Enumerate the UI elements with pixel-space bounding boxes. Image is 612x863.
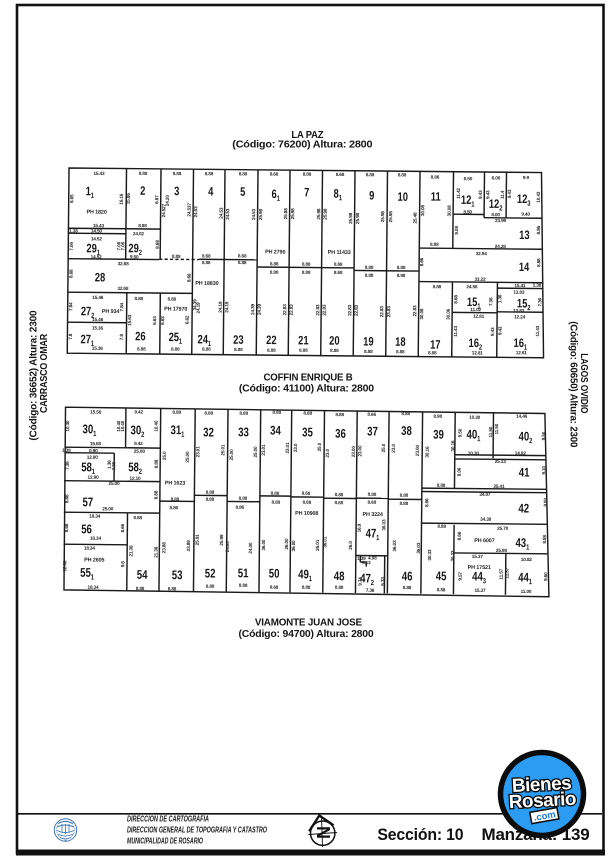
svg-text:11.00: 11.00: [521, 589, 532, 594]
svg-text:25.70: 25.70: [497, 526, 509, 531]
svg-text:15.37: 15.37: [474, 588, 486, 593]
svg-text:9.42: 9.42: [134, 441, 143, 446]
svg-text:33: 33: [238, 426, 249, 440]
svg-text:8.88: 8.88: [154, 459, 159, 468]
svg-text:14.52: 14.52: [91, 236, 103, 241]
svg-text:8.88: 8.88: [271, 491, 280, 496]
svg-text:1.38: 1.38: [533, 283, 542, 288]
svg-text:8.88: 8.88: [302, 270, 311, 275]
svg-text:Sección: 10: Sección: 10: [377, 825, 463, 844]
svg-text:8.88: 8.88: [302, 262, 311, 267]
svg-text:21: 21: [298, 334, 309, 348]
svg-text:11.43: 11.43: [453, 326, 458, 337]
svg-text:18: 18: [395, 336, 406, 350]
svg-text:53: 53: [172, 569, 183, 583]
svg-text:34: 34: [270, 424, 281, 438]
svg-text:11.42: 11.42: [456, 188, 461, 199]
svg-text:8.68: 8.68: [334, 262, 343, 267]
svg-text:1.38: 1.38: [69, 228, 78, 233]
svg-text:8.06: 8.06: [457, 467, 462, 476]
svg-text:23.01: 23.01: [195, 446, 200, 458]
svg-text:PH 10908: PH 10908: [295, 511, 318, 517]
svg-text:8.00: 8.00: [491, 212, 500, 217]
svg-text:8.88: 8.88: [366, 172, 375, 177]
svg-text:9.50: 9.50: [458, 428, 463, 437]
svg-text:8.88: 8.88: [172, 410, 181, 415]
svg-text:8.68: 8.68: [270, 585, 279, 590]
svg-text:15.46: 15.46: [92, 317, 104, 322]
svg-text:19: 19: [363, 335, 374, 349]
svg-text:8.68: 8.68: [155, 240, 160, 249]
svg-text:9.43: 9.43: [490, 327, 495, 336]
svg-text:36.00: 36.00: [291, 540, 296, 552]
svg-text:30.06: 30.06: [446, 308, 451, 320]
svg-text:18.34: 18.34: [90, 536, 102, 541]
svg-text:46: 46: [402, 570, 413, 584]
svg-text:25.99: 25.99: [219, 534, 224, 546]
svg-text:24.00: 24.00: [248, 542, 253, 554]
svg-text:32.94: 32.94: [476, 251, 488, 256]
svg-text:15.63: 15.63: [127, 314, 132, 326]
svg-text:24.19: 24.19: [224, 301, 229, 313]
svg-text:9.74: 9.74: [358, 577, 363, 586]
svg-text:30.16: 30.16: [425, 446, 430, 458]
svg-text:8.88: 8.88: [437, 483, 446, 488]
svg-text:7.36: 7.36: [488, 297, 493, 306]
svg-text:8.68: 8.68: [303, 500, 312, 505]
svg-text:10: 10: [397, 191, 408, 205]
svg-text:24.53: 24.53: [251, 208, 256, 220]
svg-text:13: 13: [519, 229, 530, 243]
svg-text:36.03: 36.03: [392, 540, 397, 552]
svg-text:8.88: 8.88: [239, 496, 248, 501]
svg-text:8.88: 8.88: [239, 171, 248, 176]
svg-text:32.68: 32.68: [117, 286, 129, 291]
svg-text:8.86: 8.86: [169, 505, 178, 510]
svg-text:LAGOS OVIDIO: LAGOS OVIDIO: [578, 353, 589, 413]
svg-text:8.88: 8.88: [138, 223, 147, 228]
svg-text:9.10: 9.10: [541, 466, 546, 475]
svg-text:25.98: 25.98: [496, 548, 508, 553]
svg-text:8.66: 8.66: [457, 531, 462, 540]
svg-text:36.03: 36.03: [416, 542, 421, 554]
svg-text:6.87: 6.87: [154, 195, 159, 204]
svg-text:8.88: 8.88: [299, 348, 308, 353]
svg-text:24.53: 24.53: [193, 206, 198, 218]
svg-text:25.98: 25.98: [388, 211, 393, 223]
svg-text:8.88: 8.88: [330, 348, 339, 353]
svg-text:VIAMONTE JUAN JOSE: VIAMONTE JUAN JOSE: [255, 618, 362, 629]
svg-text:8.88: 8.88: [400, 493, 409, 498]
svg-text:0.90: 0.90: [89, 448, 98, 453]
svg-text:11.50: 11.50: [494, 423, 499, 434]
svg-text:8.88: 8.88: [239, 411, 248, 416]
svg-text:25.00: 25.00: [229, 449, 234, 461]
svg-text:7.36: 7.36: [537, 297, 542, 306]
svg-text:8.88: 8.88: [403, 585, 412, 590]
svg-text:25.41: 25.41: [493, 484, 505, 489]
svg-text:11.02: 11.02: [470, 307, 481, 312]
svg-text:8.68: 8.68: [336, 172, 345, 177]
svg-text:9.43: 9.43: [498, 326, 503, 335]
svg-text:25.98: 25.98: [290, 208, 295, 220]
svg-text:9.40: 9.40: [521, 212, 530, 217]
svg-text:12.81: 12.81: [473, 314, 485, 319]
svg-text:16.16: 16.16: [119, 193, 124, 205]
svg-text:24.19: 24.19: [196, 302, 201, 314]
svg-text:41: 41: [519, 466, 530, 480]
svg-text:21.38: 21.38: [153, 546, 158, 558]
svg-text:12.24: 12.24: [514, 314, 526, 319]
svg-text:1.38: 1.38: [62, 448, 71, 453]
svg-text:7.8: 7.8: [119, 334, 124, 341]
svg-text:50: 50: [269, 567, 280, 581]
svg-text:8.88: 8.88: [171, 497, 180, 502]
svg-text:8.68: 8.68: [302, 491, 311, 496]
svg-text:8.68: 8.68: [453, 295, 458, 304]
svg-text:8.88: 8.88: [134, 296, 143, 301]
svg-text:9.43: 9.43: [507, 189, 512, 198]
svg-text:8.86: 8.86: [235, 505, 244, 510]
svg-text:7.84: 7.84: [119, 302, 124, 311]
svg-text:10.82: 10.82: [521, 557, 533, 562]
svg-text:11.4: 11.4: [500, 190, 505, 199]
svg-text:CARRASCO OMAR: CARRASCO OMAR: [39, 333, 50, 413]
svg-text:23.83: 23.83: [386, 306, 391, 318]
svg-text:8.88: 8.88: [396, 349, 405, 354]
svg-text:30.08: 30.08: [419, 308, 424, 320]
svg-text:PH 17521: PH 17521: [468, 565, 491, 571]
svg-text:11.43: 11.43: [535, 325, 540, 336]
svg-text:24.537: 24.537: [187, 203, 192, 217]
svg-text:25.00: 25.00: [185, 451, 190, 463]
svg-text:8.66: 8.66: [367, 412, 376, 417]
svg-text:15.46: 15.46: [92, 295, 104, 300]
svg-text:25.91: 25.91: [195, 534, 200, 546]
svg-text:25.98: 25.98: [380, 211, 385, 223]
svg-text:15.58: 15.58: [90, 441, 102, 446]
svg-text:37: 37: [367, 425, 378, 439]
svg-text:PH 2790: PH 2790: [265, 249, 285, 255]
svg-text:7: 7: [304, 186, 309, 200]
svg-text:9.93: 9.93: [543, 498, 548, 507]
svg-text:MUNICIPALIDAD DE ROSARIO: MUNICIPALIDAD DE ROSARIO: [127, 835, 203, 845]
svg-text:8.88: 8.88: [433, 284, 442, 289]
svg-text:33.22: 33.22: [474, 277, 486, 282]
svg-text:45: 45: [436, 570, 447, 584]
svg-text:10.30: 10.30: [65, 420, 70, 432]
svg-text:8.88: 8.88: [173, 171, 182, 176]
svg-text:16.9: 16.9: [357, 523, 362, 532]
svg-text:8.68: 8.68: [238, 253, 247, 258]
svg-text:30.08: 30.08: [420, 205, 425, 217]
svg-text:25.00: 25.00: [102, 506, 114, 511]
svg-text:8.88: 8.88: [364, 349, 373, 354]
svg-text:8.88: 8.88: [171, 347, 180, 352]
svg-text:10.30: 10.30: [469, 415, 481, 420]
svg-text:24.53: 24.53: [225, 208, 230, 220]
svg-text:PH 934: PH 934: [102, 309, 120, 315]
svg-text:8.88: 8.88: [365, 273, 374, 278]
svg-text:35: 35: [302, 426, 313, 440]
svg-text:22.83: 22.83: [379, 306, 384, 318]
svg-text:8.88: 8.88: [137, 346, 146, 351]
svg-text:8.88: 8.88: [153, 490, 158, 499]
svg-text:4: 4: [208, 185, 213, 199]
svg-text:1.36: 1.36: [497, 294, 502, 303]
svg-text:8.88: 8.88: [270, 261, 279, 266]
svg-text:10.40: 10.40: [154, 420, 159, 432]
svg-text:15.37: 15.37: [472, 554, 484, 559]
svg-text:DIRECCION DE CARTOGRAFIA: DIRECCION DE CARTOGRAFIA: [127, 813, 209, 823]
svg-text:12.90: 12.90: [87, 455, 99, 460]
svg-text:36.01: 36.01: [322, 536, 327, 548]
svg-text:24.28: 24.28: [495, 244, 507, 249]
svg-text:23.00: 23.00: [351, 446, 356, 458]
svg-text:26.00: 26.00: [284, 538, 289, 550]
svg-text:14.46: 14.46: [516, 414, 528, 419]
svg-text:2: 2: [140, 185, 145, 199]
svg-text:23: 23: [233, 334, 244, 348]
svg-text:PH 17970: PH 17970: [164, 306, 187, 312]
svg-text:12.68: 12.68: [62, 560, 67, 572]
svg-text:9.9: 9.9: [523, 175, 530, 180]
svg-text:25.88: 25.88: [283, 208, 288, 220]
svg-text:12.81: 12.81: [472, 350, 484, 355]
svg-text:25.00: 25.00: [108, 481, 120, 486]
svg-text:36.00: 36.00: [261, 539, 266, 551]
svg-text:22.83: 22.83: [354, 304, 359, 316]
svg-text:8.88: 8.88: [302, 585, 311, 590]
svg-text:18.34: 18.34: [87, 585, 99, 590]
svg-text:22.83: 22.83: [289, 304, 294, 316]
svg-text:PH 11433: PH 11433: [328, 250, 351, 256]
svg-text:8.88: 8.88: [303, 172, 312, 177]
svg-text:PH 1623: PH 1623: [165, 480, 185, 486]
svg-text:38: 38: [401, 425, 412, 439]
svg-text:9.60: 9.60: [543, 572, 548, 581]
svg-text:22.83: 22.83: [322, 304, 327, 316]
svg-text:22.83: 22.83: [347, 304, 352, 316]
svg-text:8.66: 8.66: [424, 498, 429, 507]
svg-text:8.98: 8.98: [397, 273, 406, 278]
svg-text:PH 3224: PH 3224: [363, 512, 383, 518]
svg-text:25.0: 25.0: [317, 442, 322, 451]
svg-text:56: 56: [81, 523, 92, 537]
svg-text:8.88: 8.88: [400, 501, 409, 506]
svg-text:25.98: 25.98: [316, 208, 321, 220]
svg-text:COFFIN ENRIQUE B: COFFIN ENRIQUE B: [264, 373, 354, 384]
svg-text:9.08: 9.08: [454, 226, 459, 235]
svg-text:8.88: 8.88: [267, 348, 276, 353]
svg-text:8.88: 8.88: [437, 524, 446, 529]
svg-text:28: 28: [95, 271, 106, 285]
svg-text:8.68: 8.68: [334, 270, 343, 275]
svg-text:23.0: 23.0: [293, 443, 298, 452]
svg-text:8.88: 8.88: [428, 350, 437, 355]
svg-text:8.88: 8.88: [205, 171, 214, 176]
svg-text:8.88: 8.88: [437, 587, 446, 592]
svg-text:32.68: 32.68: [118, 261, 130, 266]
svg-text:8.88: 8.88: [204, 411, 213, 416]
svg-text:8.50: 8.50: [463, 210, 472, 215]
svg-text:18.34: 18.34: [84, 546, 96, 551]
svg-text:15.36: 15.36: [92, 346, 104, 351]
svg-text:8.68: 8.68: [368, 500, 377, 505]
svg-text:25.00: 25.00: [134, 449, 146, 454]
svg-text:24.20: 24.20: [165, 195, 170, 207]
svg-text:9.8: 9.8: [120, 561, 125, 568]
svg-text:8.98: 8.98: [433, 414, 442, 419]
svg-text:24.00: 24.00: [225, 541, 230, 553]
svg-text:25.0: 25.0: [162, 451, 167, 460]
svg-text:7.84: 7.84: [68, 302, 73, 311]
svg-text:8.68: 8.68: [64, 523, 69, 532]
svg-text:25.98: 25.98: [323, 208, 328, 220]
svg-text:9.43: 9.43: [478, 190, 483, 199]
svg-text:8.88: 8.88: [430, 242, 439, 247]
svg-text:7.8: 7.8: [68, 333, 73, 340]
svg-text:9.42: 9.42: [134, 409, 143, 414]
svg-text:22: 22: [266, 334, 277, 348]
svg-text:8.88: 8.88: [139, 171, 148, 176]
svg-text:6.63: 6.63: [160, 316, 165, 325]
svg-text:15.41: 15.41: [514, 283, 526, 288]
svg-text:30.08: 30.08: [447, 205, 452, 217]
svg-text:12.10: 12.10: [130, 476, 142, 481]
svg-text:8.88: 8.88: [335, 412, 344, 417]
svg-text:8.88: 8.88: [270, 270, 279, 275]
svg-text:8.88: 8.88: [202, 347, 211, 352]
svg-text:52: 52: [205, 567, 216, 581]
svg-text:N: N: [313, 826, 333, 839]
svg-text:9: 9: [369, 189, 374, 203]
svg-text:12.61: 12.61: [516, 350, 528, 355]
svg-text:24.02: 24.02: [133, 231, 145, 236]
svg-text:PH 2605: PH 2605: [84, 557, 104, 563]
svg-text:8.86: 8.86: [536, 225, 541, 234]
svg-text:8.66: 8.66: [64, 494, 69, 503]
svg-text:25.98: 25.98: [348, 212, 353, 224]
svg-text:34.38: 34.38: [480, 517, 492, 522]
svg-text:23.89: 23.89: [186, 540, 191, 552]
svg-text:3: 3: [174, 185, 179, 199]
svg-text:8.88: 8.88: [335, 500, 344, 505]
svg-text:(Código: 41100) Altura: 2800: (Código: 41100) Altura: 2800: [239, 384, 374, 395]
svg-text:8.88: 8.88: [272, 500, 281, 505]
svg-text:7.06: 7.06: [69, 242, 74, 251]
svg-text:23.00: 23.00: [415, 445, 420, 457]
svg-text:8.88: 8.88: [397, 265, 406, 270]
svg-text:15.36: 15.36: [92, 326, 104, 331]
svg-text:22.83: 22.83: [315, 304, 320, 316]
svg-text:30.33: 30.33: [427, 549, 432, 561]
svg-text:24.39: 24.39: [250, 303, 255, 315]
svg-text:54: 54: [137, 569, 148, 583]
svg-text:8.88: 8.88: [167, 297, 176, 302]
svg-text:12.90: 12.90: [88, 475, 100, 480]
svg-text:8.50: 8.50: [464, 176, 473, 181]
svg-text:11: 11: [431, 190, 441, 204]
svg-text:10.30: 10.30: [468, 451, 480, 456]
svg-text:25.00: 25.00: [253, 446, 258, 458]
svg-text:14.82: 14.82: [515, 451, 527, 456]
svg-text:(Código: 76200) Altura: 2800: (Código: 76200) Altura: 2800: [232, 140, 372, 151]
svg-text:13.83: 13.83: [513, 290, 525, 295]
svg-text:9.57: 9.57: [458, 572, 463, 581]
svg-text:39: 39: [433, 428, 444, 442]
svg-text:10.40: 10.40: [120, 420, 125, 432]
svg-text:8.88: 8.88: [303, 411, 312, 416]
svg-text:8.88: 8.88: [202, 260, 211, 265]
svg-text:10.43: 10.43: [536, 191, 541, 203]
svg-text:8.88: 8.88: [172, 254, 181, 259]
svg-text:8.88: 8.88: [335, 585, 344, 590]
svg-text:14: 14: [519, 261, 530, 275]
svg-text:8.86: 8.86: [431, 175, 440, 180]
svg-text:24.53: 24.53: [219, 207, 224, 219]
svg-text:8.66: 8.66: [419, 257, 424, 266]
svg-text:8.66: 8.66: [120, 523, 125, 532]
svg-text:6.65: 6.65: [69, 194, 74, 203]
svg-text:9.43: 9.43: [485, 190, 490, 199]
svg-text:6.62: 6.62: [185, 315, 190, 324]
svg-text:9.50: 9.50: [130, 254, 139, 259]
svg-text:26.0: 26.0: [348, 541, 353, 550]
svg-text:15.43: 15.43: [93, 171, 105, 176]
svg-text:8.88: 8.88: [365, 265, 374, 270]
svg-text:7.36: 7.36: [65, 461, 70, 470]
svg-text:25.0: 25.0: [381, 443, 386, 452]
svg-text:6.63: 6.63: [152, 316, 157, 325]
svg-text:6.33: 6.33: [380, 577, 385, 586]
svg-text:8.88: 8.88: [206, 584, 215, 589]
svg-text:6.00: 6.00: [492, 175, 501, 180]
svg-text:8.68: 8.68: [202, 253, 211, 258]
svg-text:8.68: 8.68: [69, 269, 74, 278]
svg-text:PH 18830: PH 18830: [195, 281, 218, 287]
svg-text:24.19: 24.19: [218, 301, 223, 313]
svg-text:51: 51: [238, 567, 249, 581]
svg-text:30.16: 30.16: [450, 440, 455, 452]
svg-text:(Código: 36652) Altura: 2300: (Código: 36652) Altura: 2300: [29, 310, 40, 440]
svg-text:24.58: 24.58: [466, 284, 478, 289]
svg-text:PH 6007: PH 6007: [474, 538, 494, 544]
svg-text:(Código: 60650) Altura: 2300: (Código: 60650) Altura: 2300: [568, 321, 579, 447]
svg-text:34.07: 34.07: [479, 492, 491, 497]
svg-text:26.01: 26.01: [315, 539, 320, 551]
svg-text:23.00: 23.00: [357, 445, 362, 457]
svg-text:15.86: 15.86: [126, 193, 131, 205]
svg-text:11.57: 11.57: [505, 567, 510, 578]
svg-text:5: 5: [240, 186, 245, 200]
svg-text:8.88: 8.88: [272, 410, 281, 415]
svg-text:PH 1820: PH 1820: [86, 209, 106, 215]
svg-text:14.50: 14.50: [91, 228, 103, 233]
svg-text:8.88: 8.88: [368, 492, 377, 497]
svg-text:18.34: 18.34: [89, 514, 101, 519]
svg-text:8.88: 8.88: [239, 583, 248, 588]
svg-text:25.98: 25.98: [258, 209, 263, 221]
svg-text:DIRECCION GENERAL DE TOPOGRAFI: DIRECCION GENERAL DE TOPOGRAFIA Y CATAST…: [127, 824, 267, 834]
svg-text:13.83: 13.83: [513, 308, 525, 313]
svg-text:8.88: 8.88: [542, 535, 547, 544]
svg-text:8.88: 8.88: [133, 515, 142, 520]
svg-text:11.57: 11.57: [499, 568, 504, 579]
svg-text:7.36: 7.36: [111, 461, 116, 470]
svg-text:23.99: 23.99: [495, 218, 507, 223]
svg-text:8.88: 8.88: [536, 258, 541, 267]
